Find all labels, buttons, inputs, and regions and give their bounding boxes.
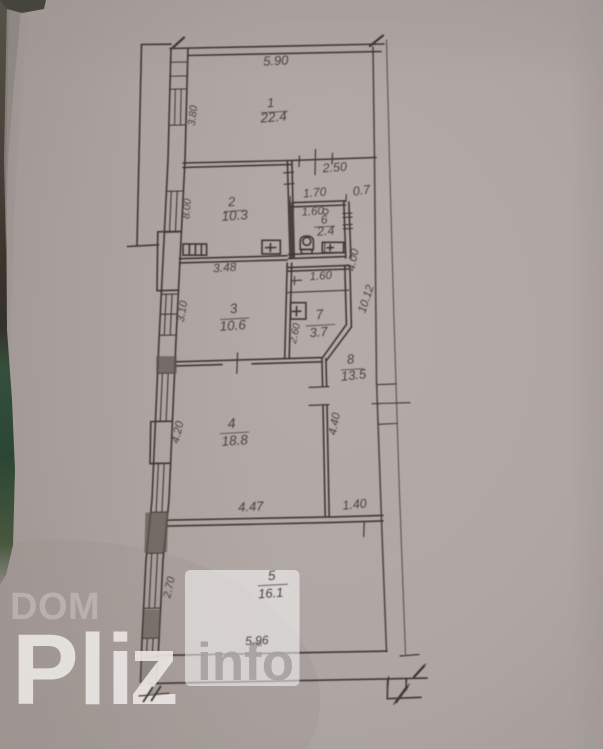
- svg-text:5.90: 5.90: [263, 52, 290, 68]
- svg-text:1: 1: [266, 95, 275, 111]
- svg-text:1.60: 1.60: [309, 270, 333, 284]
- svg-text:2.4: 2.4: [315, 223, 335, 239]
- svg-text:1.40: 1.40: [342, 496, 368, 512]
- svg-text:2.50: 2.50: [321, 160, 347, 176]
- svg-text:10.3: 10.3: [221, 207, 249, 224]
- svg-text:5.96: 5.96: [245, 633, 269, 648]
- svg-text:4.47: 4.47: [238, 498, 265, 514]
- svg-text:Pli: Pli: [12, 614, 134, 726]
- svg-text:1.70: 1.70: [302, 184, 327, 200]
- svg-text:3.7: 3.7: [309, 324, 329, 341]
- svg-text:8.00: 8.00: [180, 198, 194, 220]
- svg-text:22.4: 22.4: [259, 108, 287, 125]
- svg-text:0.7: 0.7: [352, 182, 372, 198]
- svg-text:3.48: 3.48: [213, 260, 238, 276]
- svg-text:4: 4: [227, 415, 236, 432]
- svg-text:16.1: 16.1: [258, 585, 284, 602]
- svg-text:3.80: 3.80: [186, 105, 200, 127]
- svg-text:18.8: 18.8: [221, 432, 249, 449]
- svg-text:z: z: [129, 614, 179, 726]
